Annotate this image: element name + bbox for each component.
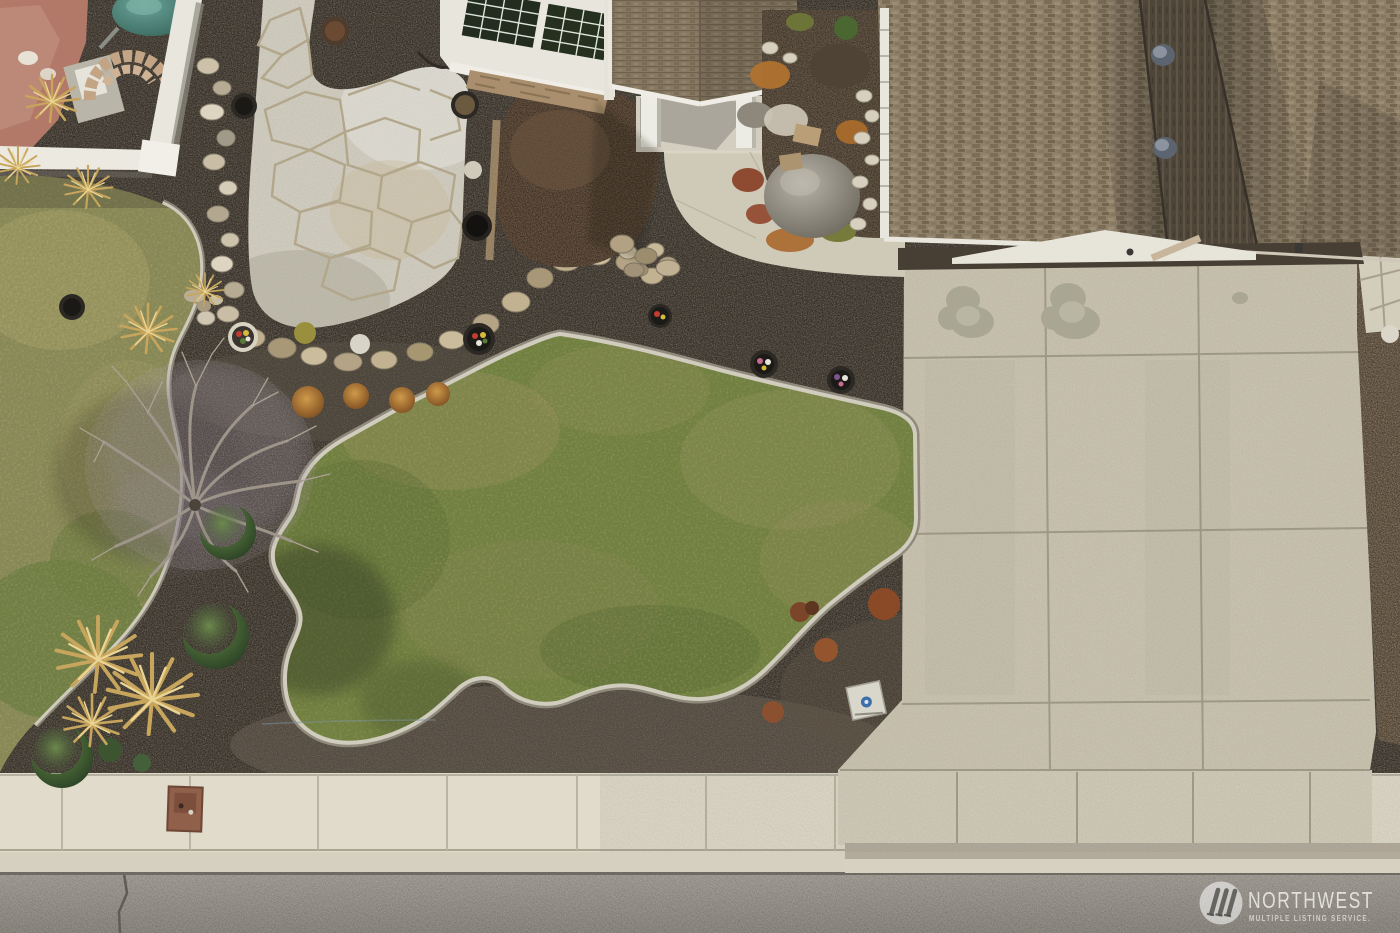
utility-box-sidewalk: [167, 786, 203, 831]
stone-sphere: [1381, 325, 1399, 343]
street: [0, 872, 1400, 933]
yellow-green-shrub: [294, 322, 316, 344]
small-green-bush: [834, 16, 858, 40]
watermark: NORTHWEST MULTIPLE LISTING SERVICE.: [1200, 882, 1375, 925]
aerial-photo-canvas: NORTHWEST MULTIPLE LISTING SERVICE.: [0, 0, 1400, 933]
boulder: [764, 154, 860, 238]
real-estate-aerial-photo: NORTHWEST MULTIPLE LISTING SERVICE.: [0, 0, 1400, 933]
watermark-tagline: MULTIPLE LISTING SERVICE.: [1249, 914, 1371, 923]
gutter: [880, 8, 889, 238]
utility-box-driveway: [846, 681, 886, 720]
main-house-roof: [878, 0, 1400, 270]
watermark-brand: NORTHWEST: [1248, 887, 1374, 913]
